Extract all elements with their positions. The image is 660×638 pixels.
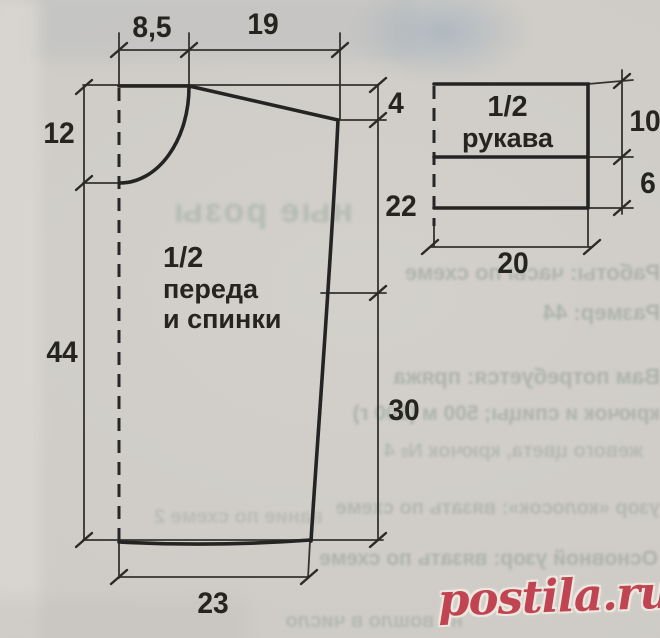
scanned-pattern-page: ные розы Работы: часы по схеме Размер: 4… [0,0,660,638]
main-piece-label: 1/2 переда и спинки [163,243,281,334]
dim-sleeve-lower-height: 6 [640,167,656,201]
dim-shoulder-drop: 4 [388,87,404,121]
postila-watermark: postila.ru [437,566,654,631]
sleeve-piece-label-line2: рукава [455,124,560,154]
dim-sleeve-upper-height: 10 [629,105,660,139]
pattern-schematic-drawing [0,0,660,638]
dim-sleeve-half-width: 20 [497,247,528,281]
sleeve-piece-label-fraction: 1/2 [455,92,560,124]
dim-neck-width: 8,5 [132,11,171,45]
dim-length-below-neck: 44 [46,336,77,370]
dim-neck-depth: 12 [43,117,74,151]
main-piece-label-line3: и спинки [163,305,281,335]
main-piece-label-line2: переда [163,275,281,305]
dim-shoulder-width: 19 [247,8,278,42]
dim-armhole-depth: 22 [385,190,416,224]
dim-half-hem-width: 23 [197,587,228,621]
sleeve-piece-label: 1/2 рукава [455,92,560,154]
main-piece-label-fraction: 1/2 [163,243,281,275]
dim-side-below-armhole: 30 [388,394,419,428]
